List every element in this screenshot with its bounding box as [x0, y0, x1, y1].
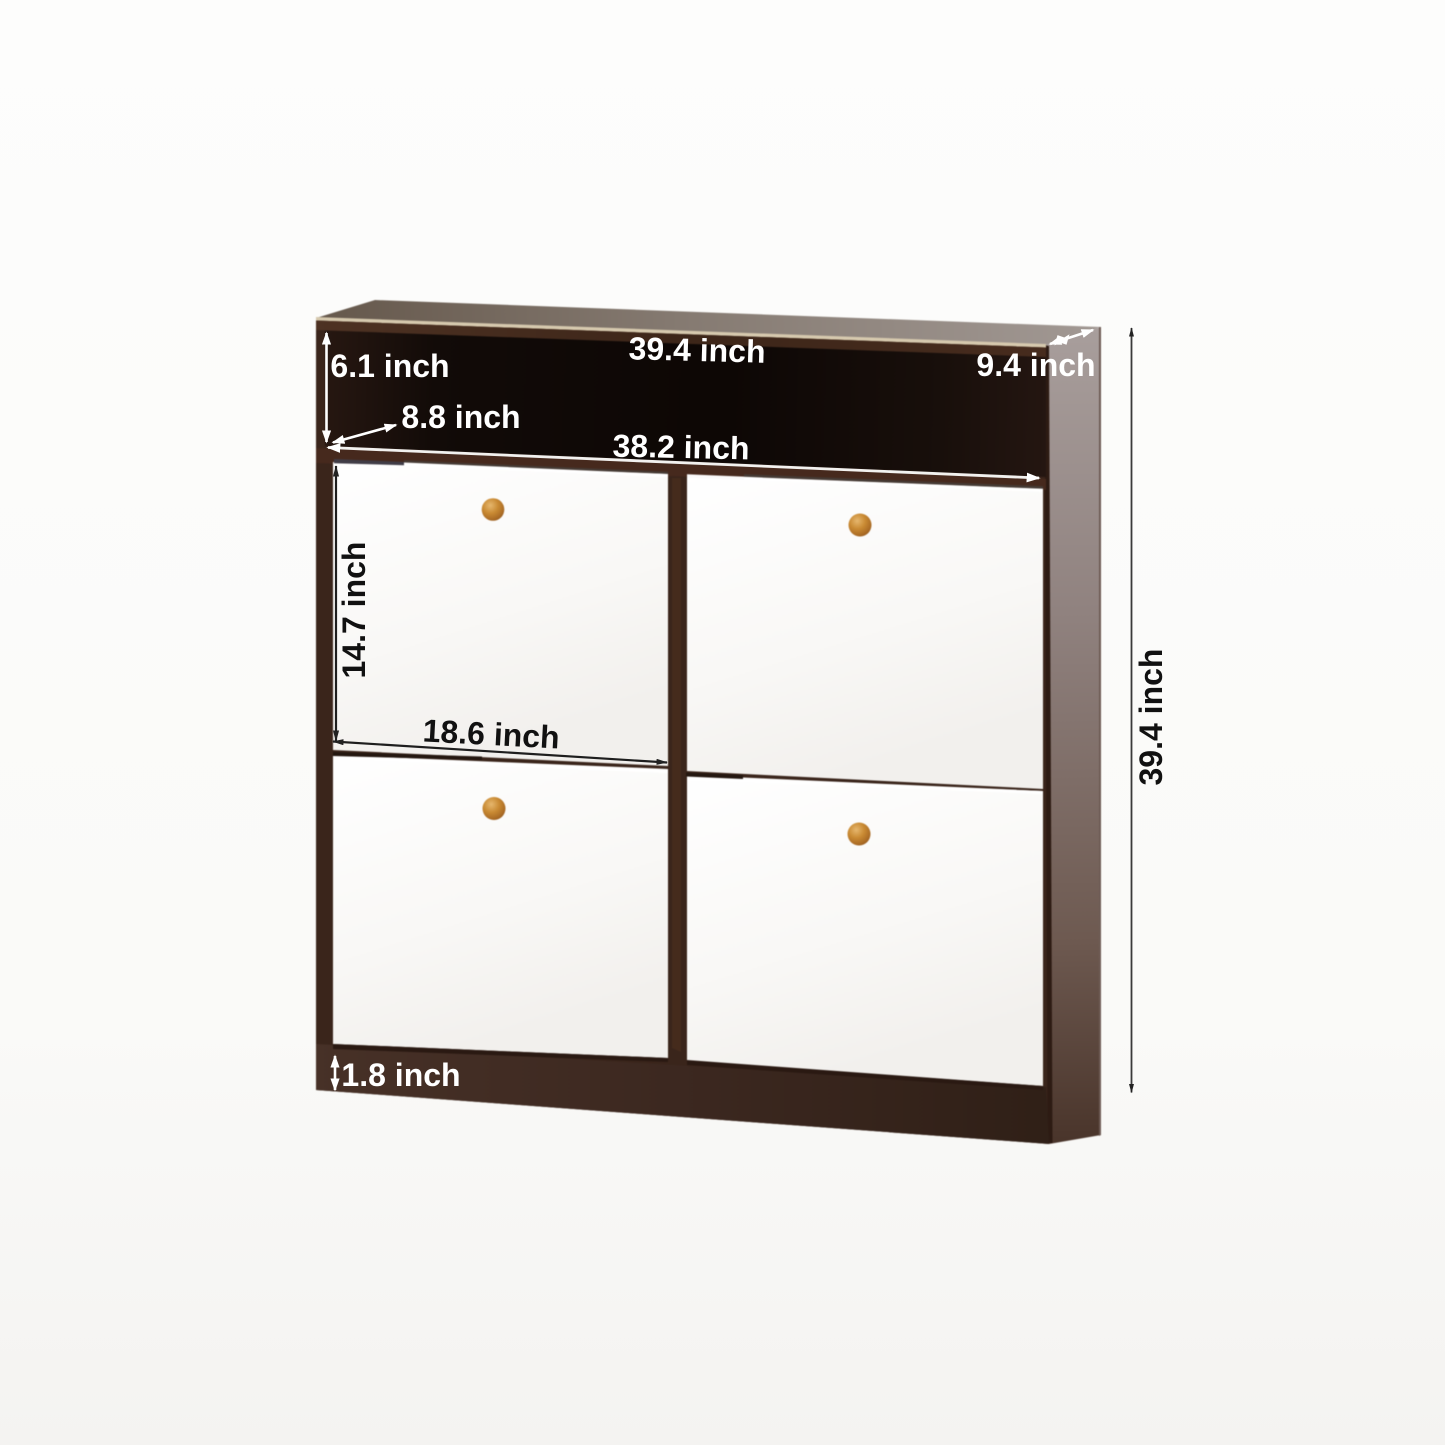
svg-text:1.8 inch: 1.8 inch [341, 1057, 460, 1093]
svg-text:39.4 inch: 39.4 inch [628, 330, 766, 370]
svg-text:9.4 inch: 9.4 inch [976, 347, 1095, 383]
svg-text:14.7 inch: 14.7 inch [336, 542, 372, 679]
svg-text:18.6 inch: 18.6 inch [422, 712, 561, 755]
svg-text:8.8 inch: 8.8 inch [401, 399, 520, 435]
svg-text:39.4 inch: 39.4 inch [1133, 649, 1169, 786]
svg-text:38.2 inch: 38.2 inch [612, 428, 750, 467]
svg-text:6.1 inch: 6.1 inch [330, 348, 449, 384]
